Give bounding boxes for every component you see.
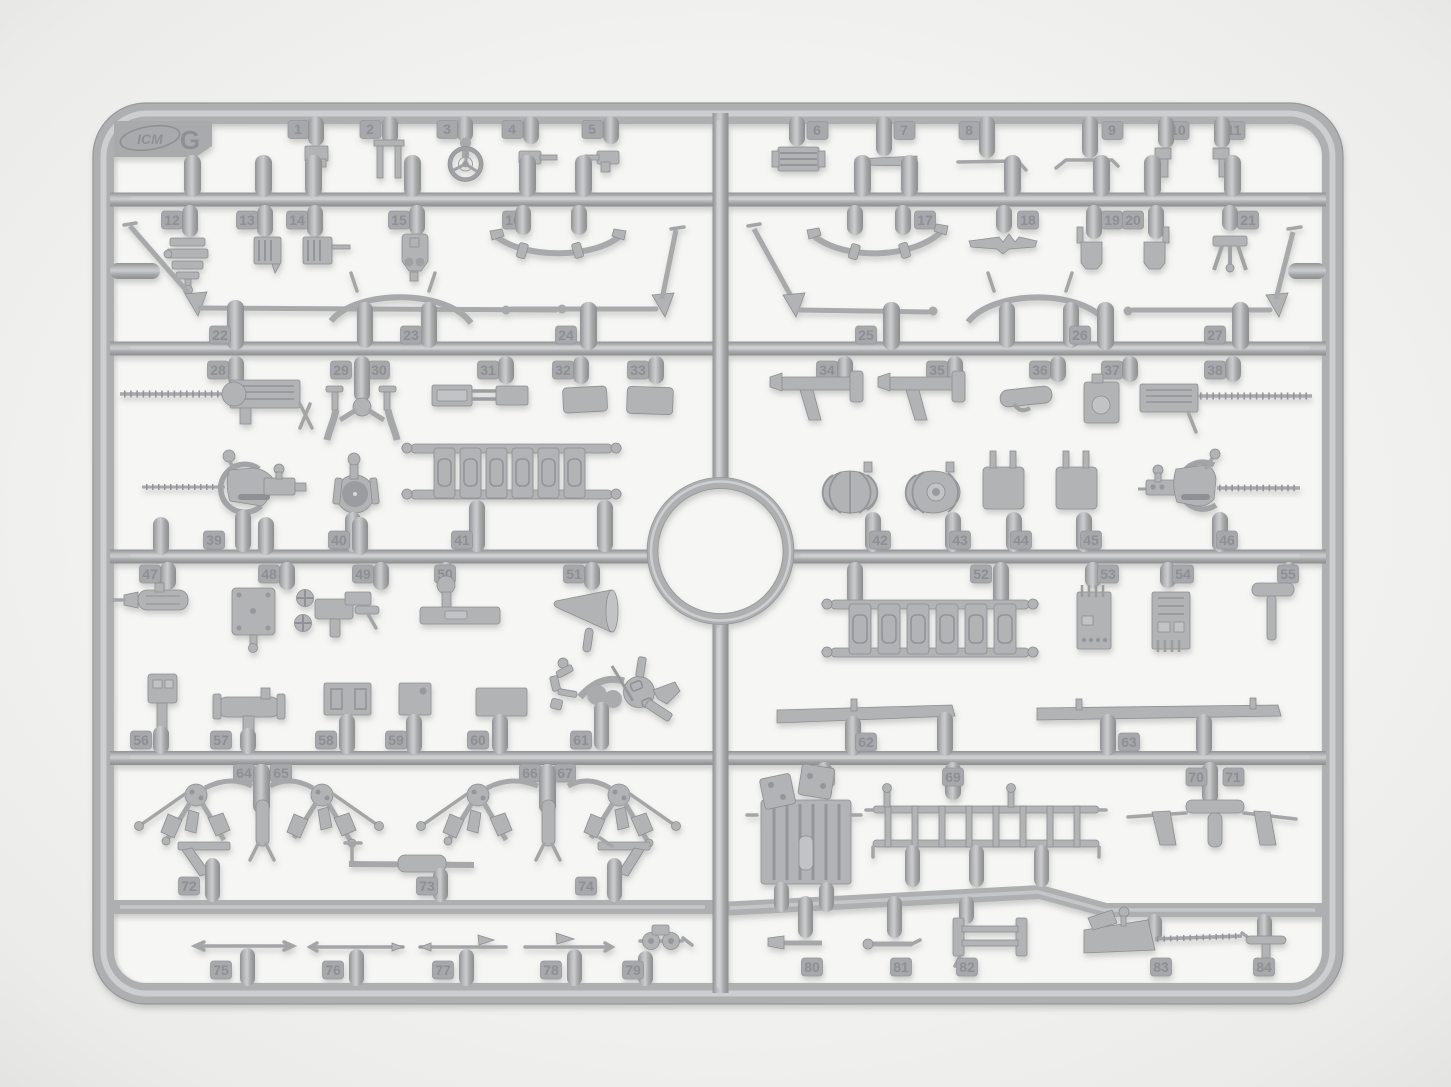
svg-text:47: 47 <box>142 566 158 582</box>
svg-text:64: 64 <box>236 765 252 781</box>
svg-text:69: 69 <box>945 769 961 785</box>
svg-text:77: 77 <box>435 962 451 978</box>
svg-text:74: 74 <box>578 878 594 894</box>
svg-text:62: 62 <box>858 734 874 750</box>
svg-text:8: 8 <box>965 122 973 138</box>
svg-text:43: 43 <box>952 532 968 548</box>
svg-text:24: 24 <box>558 327 574 343</box>
svg-text:71: 71 <box>1225 769 1241 785</box>
svg-text:13: 13 <box>239 212 255 228</box>
svg-text:52: 52 <box>973 566 989 582</box>
svg-text:45: 45 <box>1083 532 1099 548</box>
svg-text:76: 76 <box>325 962 341 978</box>
svg-text:70: 70 <box>1188 769 1204 785</box>
svg-text:53: 53 <box>1100 566 1116 582</box>
svg-text:73: 73 <box>419 878 435 894</box>
svg-text:56: 56 <box>133 732 149 748</box>
svg-text:22: 22 <box>212 327 228 343</box>
svg-text:40: 40 <box>331 532 347 548</box>
svg-text:46: 46 <box>1219 532 1235 548</box>
svg-text:20: 20 <box>1125 212 1141 228</box>
svg-text:58: 58 <box>318 732 334 748</box>
svg-text:4: 4 <box>508 121 516 137</box>
svg-text:29: 29 <box>333 362 349 378</box>
svg-text:42: 42 <box>872 532 888 548</box>
svg-text:35: 35 <box>929 362 945 378</box>
svg-text:32: 32 <box>555 362 571 378</box>
svg-text:31: 31 <box>480 362 496 378</box>
svg-text:55: 55 <box>1280 566 1296 582</box>
svg-text:12: 12 <box>164 212 180 228</box>
svg-text:44: 44 <box>1013 532 1029 548</box>
svg-text:17: 17 <box>917 212 933 228</box>
svg-text:30: 30 <box>371 362 387 378</box>
svg-text:48: 48 <box>261 566 277 582</box>
svg-text:63: 63 <box>1121 734 1137 750</box>
svg-text:27: 27 <box>1207 327 1223 343</box>
svg-text:72: 72 <box>181 878 197 894</box>
svg-text:21: 21 <box>1240 212 1256 228</box>
svg-text:84: 84 <box>1256 959 1272 975</box>
svg-text:49: 49 <box>355 566 371 582</box>
svg-text:7: 7 <box>900 122 908 138</box>
svg-text:80: 80 <box>804 959 820 975</box>
svg-text:75: 75 <box>213 962 229 978</box>
svg-text:39: 39 <box>206 532 222 548</box>
svg-text:66: 66 <box>522 765 538 781</box>
svg-text:19: 19 <box>1104 212 1120 228</box>
svg-text:9: 9 <box>1108 122 1116 138</box>
svg-text:25: 25 <box>858 327 874 343</box>
svg-text:78: 78 <box>543 962 559 978</box>
svg-text:59: 59 <box>388 732 404 748</box>
svg-text:15: 15 <box>391 212 407 228</box>
svg-text:61: 61 <box>573 732 589 748</box>
svg-text:34: 34 <box>819 362 835 378</box>
svg-text:3: 3 <box>443 121 451 137</box>
svg-text:18: 18 <box>1020 212 1036 228</box>
svg-text:54: 54 <box>1175 566 1191 582</box>
svg-text:G: G <box>180 125 200 155</box>
svg-text:6: 6 <box>813 122 821 138</box>
svg-text:81: 81 <box>893 959 909 975</box>
svg-text:28: 28 <box>210 362 226 378</box>
svg-text:1: 1 <box>294 121 302 137</box>
svg-text:83: 83 <box>1153 959 1169 975</box>
svg-text:5: 5 <box>588 121 596 137</box>
svg-text:2: 2 <box>366 121 374 137</box>
svg-text:33: 33 <box>630 362 646 378</box>
svg-text:60: 60 <box>470 732 486 748</box>
svg-text:38: 38 <box>1207 362 1223 378</box>
svg-text:36: 36 <box>1032 362 1048 378</box>
svg-text:79: 79 <box>625 962 641 978</box>
svg-text:23: 23 <box>403 327 419 343</box>
svg-text:26: 26 <box>1072 327 1088 343</box>
svg-text:14: 14 <box>289 212 305 228</box>
svg-text:ICM: ICM <box>137 131 163 147</box>
svg-text:37: 37 <box>1104 362 1120 378</box>
svg-text:51: 51 <box>566 566 582 582</box>
svg-text:67: 67 <box>557 765 573 781</box>
svg-text:41: 41 <box>454 532 470 548</box>
svg-text:57: 57 <box>213 732 229 748</box>
svg-text:82: 82 <box>959 959 975 975</box>
